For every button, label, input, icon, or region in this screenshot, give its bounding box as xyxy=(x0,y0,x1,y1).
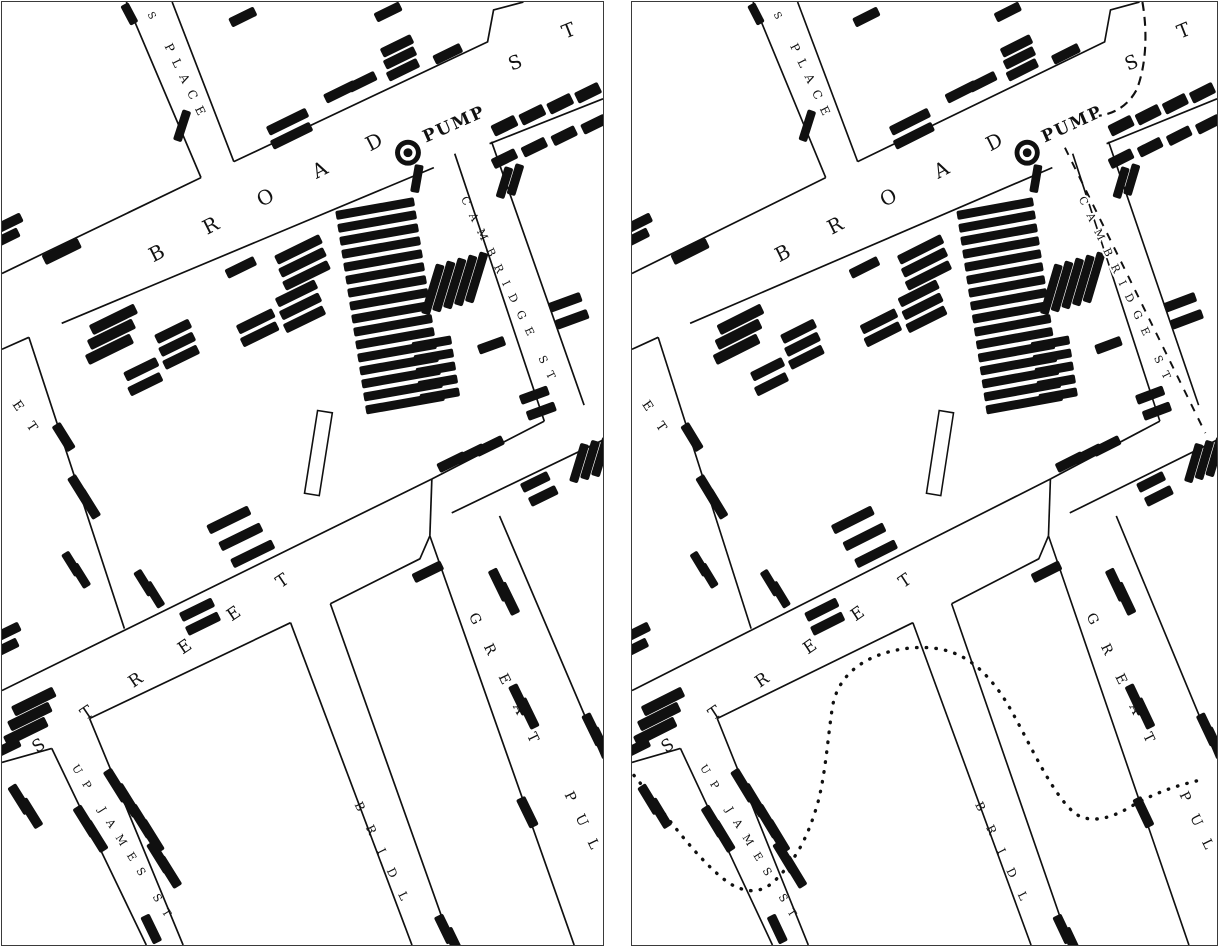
map-label-et: ET xyxy=(638,398,677,448)
death-bar xyxy=(1113,581,1136,616)
death-bar xyxy=(680,422,704,453)
death-bar xyxy=(120,2,138,26)
street-line xyxy=(330,536,430,604)
street-line xyxy=(952,536,1049,604)
death-bar xyxy=(852,6,881,27)
death-bar xyxy=(520,137,548,158)
street-line xyxy=(2,337,29,349)
map-label-place-hint-s: S xyxy=(771,10,784,22)
death-bar xyxy=(1094,336,1123,355)
death-bar xyxy=(632,637,649,657)
snow-map-panel-with-boundary: SPLACEBROADSTPUMPCAMBRIDGE STETSTREETUP … xyxy=(631,1,1218,946)
map-label-place-hint-s: S xyxy=(145,10,158,21)
death-bar xyxy=(747,2,765,26)
death-bar xyxy=(848,256,880,279)
map-canvas-left: SPLACEBROADSTPUMPCAMBRIDGE STETSTREETUP … xyxy=(2,2,603,945)
death-bar xyxy=(1135,385,1166,405)
pump-icon xyxy=(398,142,419,163)
death-bar xyxy=(2,637,20,657)
street-line xyxy=(632,178,826,274)
death-bar xyxy=(76,488,101,520)
map-label-broad-t: T xyxy=(1174,19,1194,44)
death-bar xyxy=(698,562,719,589)
death-bar xyxy=(704,488,729,520)
dashed-boundary-arc xyxy=(1099,2,1146,116)
death-bar xyxy=(550,125,578,146)
death-bar xyxy=(477,336,507,355)
death-bar xyxy=(224,256,257,279)
snow-map-panel-original: SPLACEBROADSTPUMPCAMBRIDGE STETSTREETUP … xyxy=(1,1,604,946)
death-bar xyxy=(1030,560,1062,583)
death-bar xyxy=(347,71,378,93)
death-bar xyxy=(648,797,673,829)
death-bar xyxy=(143,581,165,609)
map-canvas-right: SPLACEBROADSTPUMPCAMBRIDGE STETSTREETUP … xyxy=(632,2,1217,945)
death-bar xyxy=(580,114,603,135)
death-bar xyxy=(1170,309,1204,330)
street-line xyxy=(1048,479,1050,536)
death-bar xyxy=(632,621,651,641)
death-bar xyxy=(1091,435,1121,457)
death-bar xyxy=(1137,137,1164,158)
map-label-great: GREAT xyxy=(1083,610,1167,766)
building-outline xyxy=(926,410,953,495)
death-bar xyxy=(526,401,557,421)
street-line xyxy=(632,337,658,349)
building-outline xyxy=(305,410,333,495)
death-bar xyxy=(497,581,521,616)
death-bar xyxy=(156,855,182,889)
death-bar xyxy=(548,292,583,313)
death-bar xyxy=(519,385,550,405)
map-label-bridl: BRIDL xyxy=(972,799,1038,917)
death-bar xyxy=(474,435,505,457)
death-bar xyxy=(411,560,444,583)
death-bar xyxy=(1029,164,1042,193)
map-label-bridl: BRIDL xyxy=(352,799,419,917)
map-label-great: GREAT xyxy=(465,610,552,766)
map-label-broad-s: S xyxy=(505,50,525,75)
street-line xyxy=(430,479,432,536)
death-bar xyxy=(555,309,590,330)
map-label-et: ET xyxy=(9,398,49,448)
street-line xyxy=(2,178,201,274)
death-bar xyxy=(993,2,1022,23)
death-bar xyxy=(516,796,539,829)
death-bar xyxy=(18,797,43,829)
death-bar xyxy=(410,164,424,193)
snow-cholera-map-figure: SPLACEBROADSTPUMPCAMBRIDGE STETSTREETUP … xyxy=(0,0,1221,950)
death-bar xyxy=(1195,114,1217,135)
death-bar xyxy=(782,855,808,889)
death-bar xyxy=(967,71,997,93)
death-bar xyxy=(228,6,257,27)
death-bar xyxy=(1166,125,1193,146)
map-label-pump-label: PUMP xyxy=(1038,101,1105,147)
map-label-pul: PUL xyxy=(1176,789,1217,866)
death-bar xyxy=(52,422,76,453)
death-bar xyxy=(769,581,791,609)
map-label-broad-s: S xyxy=(1122,51,1141,76)
map-label-broad-t: T xyxy=(559,18,579,43)
pump-icon xyxy=(1017,142,1037,163)
death-bar xyxy=(798,109,816,142)
death-bar xyxy=(1142,401,1173,421)
map-label-pump-label: PUMP xyxy=(419,101,488,147)
map-label-pul: PUL xyxy=(561,789,603,866)
death-bar xyxy=(1163,292,1197,313)
death-bar xyxy=(2,621,22,641)
death-bar xyxy=(70,562,91,589)
death-bar xyxy=(373,2,402,23)
death-bar xyxy=(173,109,191,142)
